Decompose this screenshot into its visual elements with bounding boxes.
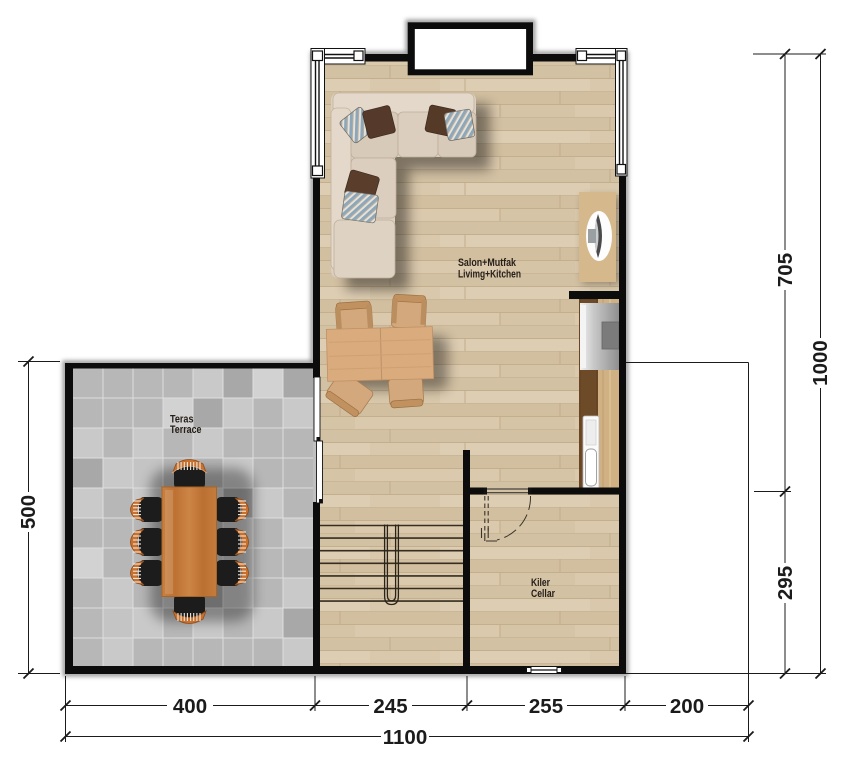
svg-text:500: 500 xyxy=(17,495,40,529)
svg-text:400: 400 xyxy=(173,695,207,718)
svg-text:1100: 1100 xyxy=(383,726,427,749)
svg-text:245: 245 xyxy=(373,695,407,718)
svg-text:Livimg+Kitchen: Livimg+Kitchen xyxy=(458,269,521,281)
svg-text:200: 200 xyxy=(670,695,704,718)
svg-text:705: 705 xyxy=(774,253,797,287)
svg-text:Salon+Mutfak: Salon+Mutfak xyxy=(458,257,517,269)
svg-text:295: 295 xyxy=(774,566,797,600)
svg-text:1000: 1000 xyxy=(809,340,832,386)
svg-text:Cellar: Cellar xyxy=(531,588,556,600)
svg-text:255: 255 xyxy=(529,695,563,718)
svg-text:Terrace: Terrace xyxy=(170,424,202,436)
